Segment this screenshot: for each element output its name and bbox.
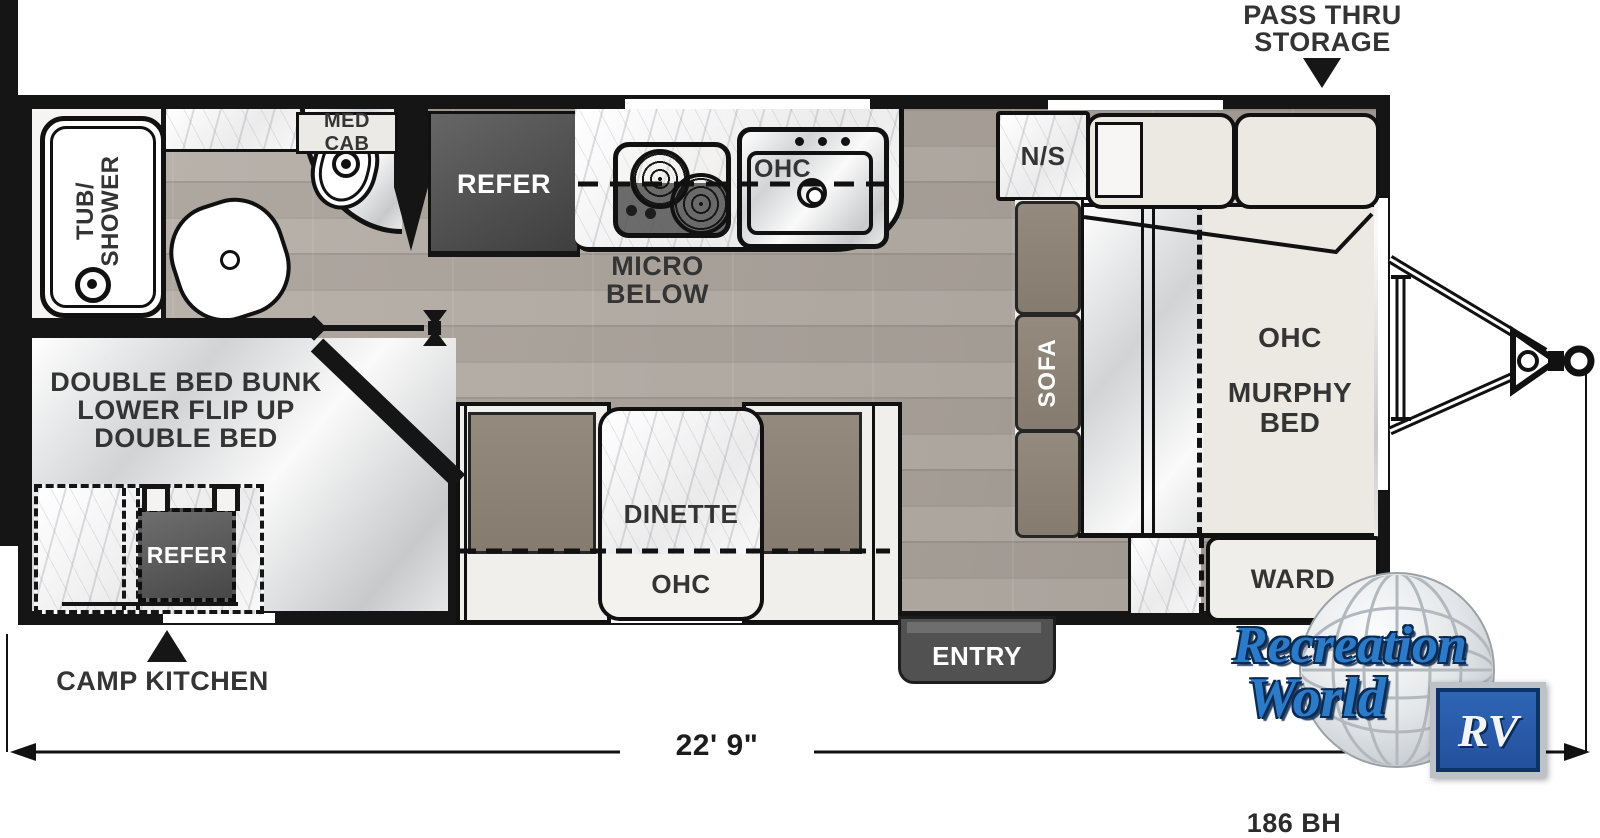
pass-thru-line2: STORAGE: [1200, 29, 1445, 56]
camp-kitchen-access-door: [163, 613, 275, 623]
hitch-ball-icon: [1567, 349, 1591, 373]
bathroom-wall: [18, 318, 314, 338]
rear-bumper: [0, 0, 18, 546]
sofa-label: SOFA: [1034, 317, 1062, 429]
kitchen-refer-base: [428, 251, 580, 257]
entry-step: ENTRY: [898, 616, 1056, 684]
med-cab-label: MED CAB: [299, 110, 395, 156]
bunk-label-line3: DOUBLE BED: [36, 424, 336, 452]
med-cab: MED CAB: [296, 112, 398, 154]
refer-clamp-right: [212, 484, 240, 511]
dinette-table: DINETTE OHC: [598, 407, 764, 621]
kitchen-refer: REFER: [428, 111, 580, 257]
dealer-logo: Recreation World RV: [1225, 540, 1585, 830]
window-kitchen: [625, 99, 870, 109]
murphy-mattress: [1203, 203, 1374, 533]
murphy-label-line2: BED: [1200, 408, 1380, 438]
sink-faucet-icon: [797, 178, 827, 208]
dinette-cushion-right: [754, 412, 862, 554]
pass-thru-line1: PASS THRU: [1200, 2, 1445, 29]
ward-dashed-divider: [1199, 538, 1204, 613]
nightstand-label: N/S: [1021, 141, 1066, 172]
kitchen-ohc-label: OHC: [754, 155, 811, 184]
logo-line1: Recreation: [1233, 620, 1467, 672]
entry-label: ENTRY: [901, 641, 1053, 672]
murphy-label-line1: MURPHY: [1200, 378, 1380, 408]
tub-drain: [75, 267, 111, 303]
murphy-bed-label: MURPHY BED: [1200, 378, 1380, 438]
camp-kitchen-divider-1: [122, 488, 126, 610]
burner-right-icon: [670, 173, 731, 235]
refer-clamp-left: [142, 484, 170, 511]
stove-knob-1: [626, 205, 637, 216]
micro-label-line2: BELOW: [570, 280, 745, 308]
dinette-bench-right: [742, 402, 902, 624]
logo-rv-badge: RV: [1430, 682, 1546, 778]
bed-ohc-label: OHC: [1200, 322, 1380, 354]
dinette-label: DINETTE: [602, 499, 760, 530]
tub-label-line2: SHOWER: [98, 156, 123, 267]
tub-label-line1: TUB/: [73, 182, 98, 240]
sofa-cushion-middle: SOFA: [1015, 314, 1081, 432]
floorplan-page: TUB/ SHOWER MED CAB DOUBLE BED BUNK LOWE…: [0, 0, 1600, 838]
length-dimension-label: 22' 9": [617, 729, 817, 763]
kitchen-sink-unit: OHC: [737, 127, 889, 249]
bed-pillow-right: [1234, 113, 1380, 209]
nightstand: N/S: [996, 111, 1090, 201]
micro-label-line1: MICRO: [570, 252, 745, 280]
camp-refer-label: REFER: [147, 542, 227, 569]
camp-kitchen-refer: REFER: [138, 508, 236, 602]
window-bedroom: [1048, 100, 1223, 110]
tub-shower: TUB/ SHOWER: [40, 116, 166, 318]
bunk-label-line2: LOWER FLIP UP: [36, 396, 336, 424]
logo-line2: World: [1247, 670, 1386, 726]
micro-below-label: MICRO BELOW: [570, 252, 745, 308]
kitchen-refer-label: REFER: [457, 169, 551, 200]
dinette-bench-left: [456, 402, 611, 624]
sofa-cushion-top: [1015, 201, 1081, 315]
camp-kitchen-baseline: [62, 602, 238, 606]
stove-knob-2: [645, 208, 656, 219]
dinette-cushion-left: [468, 412, 596, 554]
camp-kitchen-arrow-icon: [147, 630, 187, 662]
logo-rv-text: RV: [1458, 704, 1519, 757]
pass-thru-arrow-icon: [1303, 58, 1341, 88]
bath-counter: [166, 109, 300, 152]
bunk-label: DOUBLE BED BUNK LOWER FLIP UP DOUBLE BED: [36, 368, 336, 452]
stove-cooktop: [613, 142, 731, 238]
bed-pillow-left: [1086, 113, 1236, 209]
ward-side-counter: [1128, 538, 1201, 613]
dinette-ohc-label: OHC: [602, 569, 760, 600]
dimension-arrow-left: [10, 743, 36, 761]
bed-platform-dashed-rail: [1197, 200, 1202, 537]
bed-platform-rail-2: [1152, 200, 1155, 537]
camp-kitchen-label: CAMP KITCHEN: [40, 666, 285, 697]
sofa-cushion-bottom: [1015, 430, 1081, 538]
pass-thru-label: PASS THRU STORAGE: [1200, 2, 1445, 56]
bed-platform-rail-1: [1141, 200, 1144, 537]
hitch-frame-icon: [1390, 259, 1591, 431]
bunk-label-line1: DOUBLE BED BUNK: [36, 368, 336, 396]
